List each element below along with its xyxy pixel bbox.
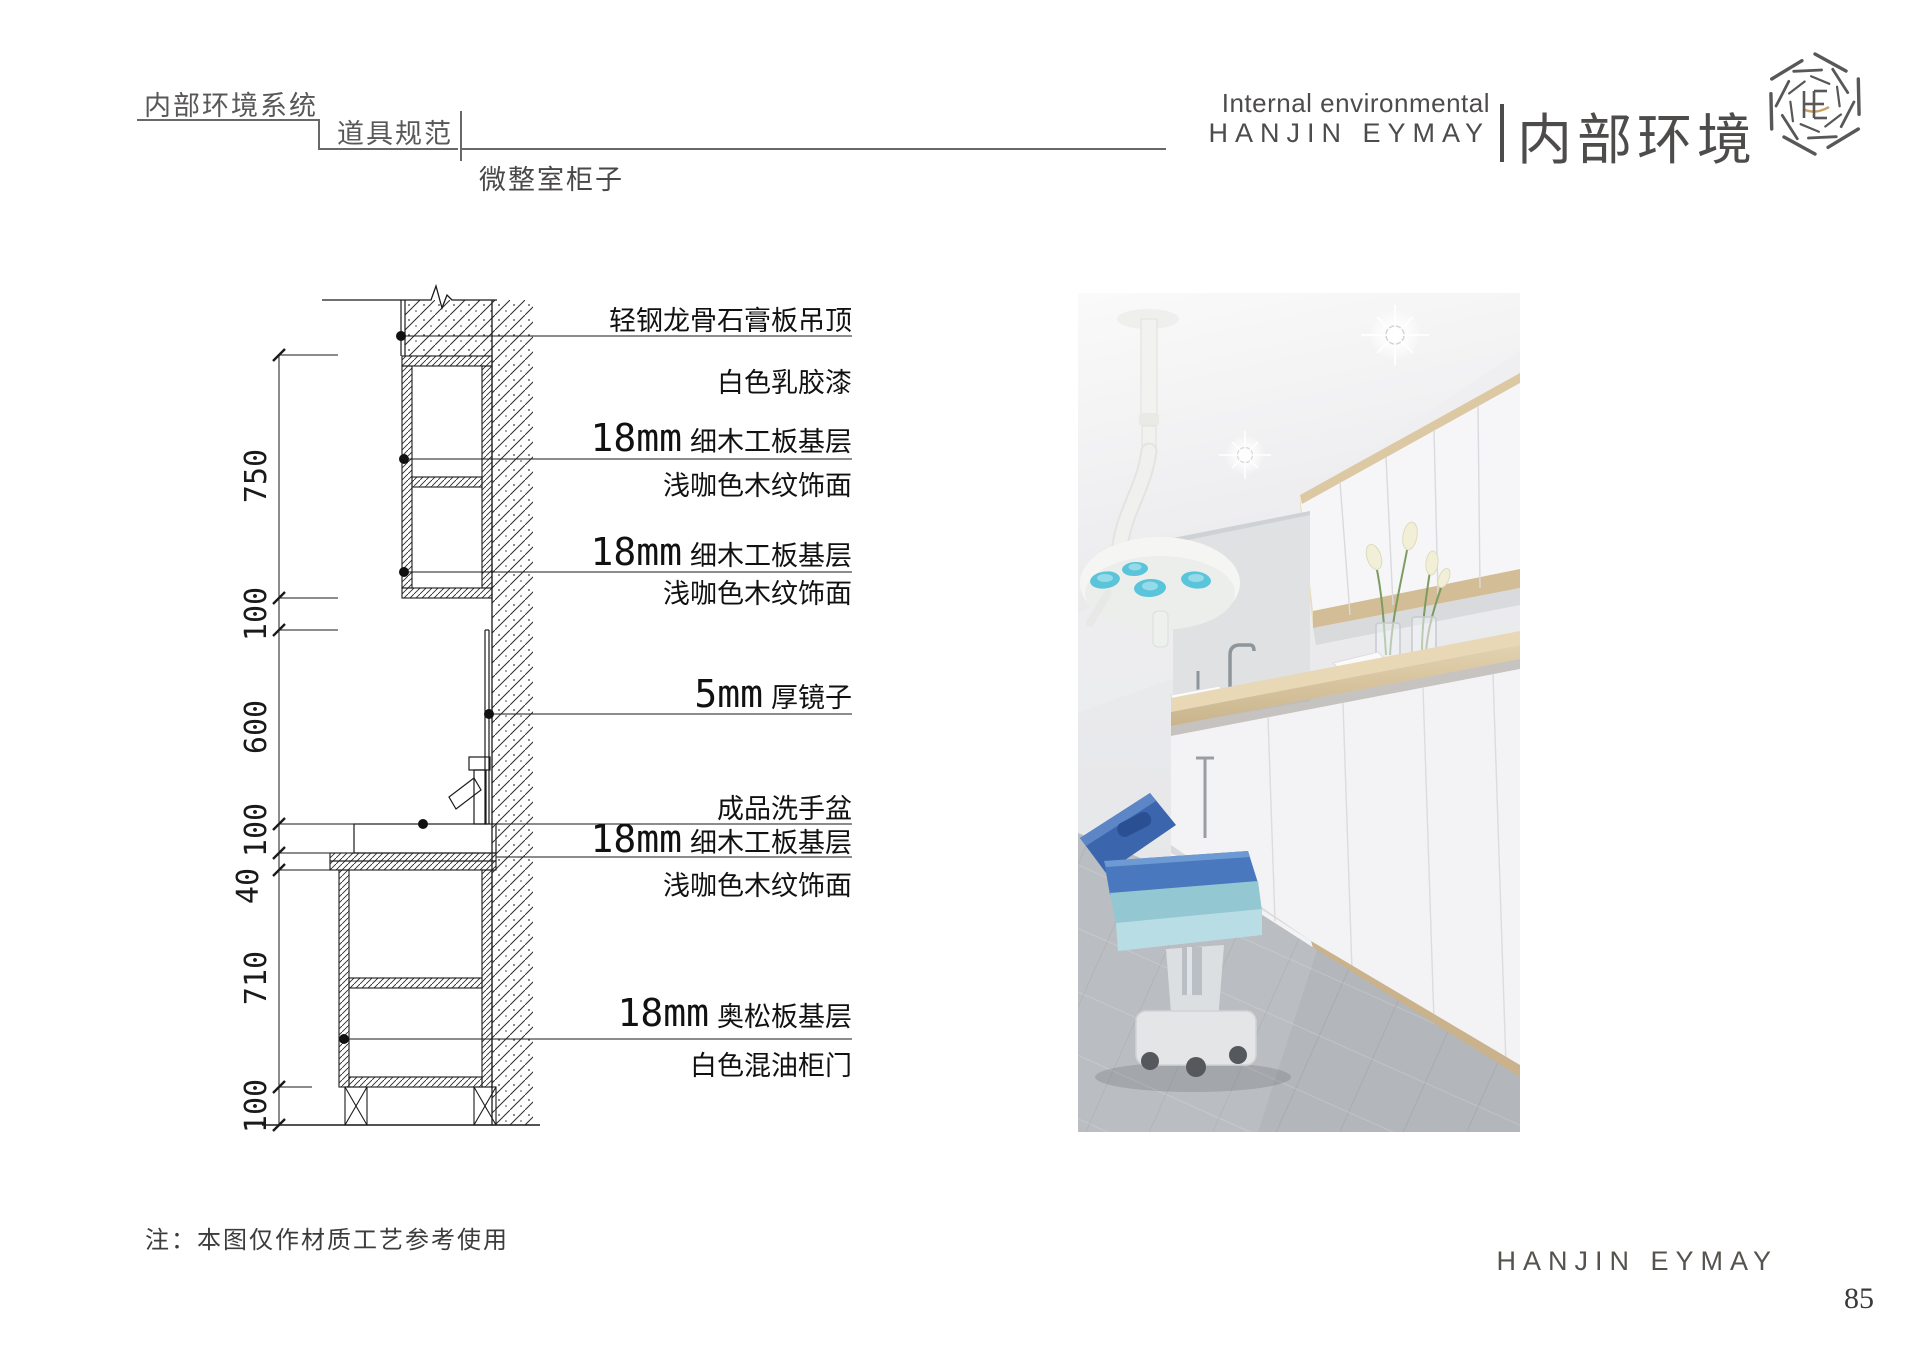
manual-page: 内部环境系统 道具规范 微整室柜子 Internal environmental… (0, 0, 1920, 1357)
lower-cabinet (339, 870, 492, 1087)
breadcrumb-step-line (318, 119, 320, 150)
annotation-label: 白色乳胶漆 (717, 368, 852, 398)
logo-gold-accent (1803, 107, 1829, 112)
clinic-room-render (1078, 293, 1520, 1132)
breadcrumb-divider (460, 111, 462, 161)
annotation-label: 浅咖色木纹饰面 (663, 871, 852, 901)
wall-hatch (401, 300, 533, 1125)
page-number: 85 (1844, 1282, 1874, 1316)
footer-brand-wordmark: HANJIN EYMAY (1496, 1246, 1778, 1277)
annotation-label: 成品洗手盆 (717, 794, 852, 824)
svg-text:710: 710 (239, 951, 274, 1005)
annotation-label: 白色混油柜门 (690, 1051, 852, 1081)
logo-monogram (1804, 91, 1827, 118)
page-title: 微整室柜子 (479, 158, 624, 197)
svg-text:100: 100 (239, 587, 274, 641)
dimension-chain (273, 349, 390, 1131)
dimension-labels: 750 100 600 100 40 710 100 (231, 449, 274, 1133)
header-english-line1: Internal environmental (1222, 88, 1490, 119)
breadcrumb-underline (137, 119, 320, 121)
header-chinese-title: 内部环境 (1517, 95, 1757, 175)
svg-text:100: 100 (239, 1079, 274, 1133)
annotation-label: 18mm奥松板基层 (617, 991, 852, 1035)
header-brand-wordmark: HANJIN EYMAY (1208, 118, 1490, 149)
annotation-label: 18mm细木工板基层 (590, 416, 852, 460)
faucet-drawing (449, 757, 490, 824)
annotation-texts: 轻钢龙骨石膏板吊顶 白色乳胶漆 18mm细木工板基层 浅咖色木纹饰面 18mm细… (590, 306, 852, 1081)
svg-text:600: 600 (239, 700, 274, 754)
breadcrumb-level2: 道具规范 (337, 112, 453, 151)
kick-braces (345, 1087, 496, 1125)
annotation-label: 轻钢龙骨石膏板吊顶 (609, 306, 852, 336)
svg-text:750: 750 (239, 449, 274, 503)
annotation-label: 5mm厚镜子 (694, 672, 852, 716)
reference-note: 注：本图仅作材质工艺参考使用 (145, 1220, 509, 1255)
breadcrumb-level1: 内部环境系统 (144, 84, 318, 123)
brand-logo (1762, 46, 1868, 162)
leader-dots (339, 331, 494, 1044)
svg-text:40: 40 (231, 868, 266, 904)
annotation-label: 18mm细木工板基层 (590, 530, 852, 574)
counter-boards (330, 853, 496, 870)
cabinet-section-drawing: 750 100 600 100 40 710 100 轻钢龙骨石膏板吊顶 白色乳… (230, 230, 910, 1180)
svg-text:100: 100 (239, 803, 274, 857)
header-divider-bar (1500, 104, 1504, 162)
annotation-label: 浅咖色木纹饰面 (663, 471, 852, 501)
annotation-label: 浅咖色木纹饰面 (663, 579, 852, 609)
reference-photo (1078, 293, 1520, 1132)
header-rule-line (460, 148, 1166, 150)
upper-cabinet (402, 356, 492, 598)
